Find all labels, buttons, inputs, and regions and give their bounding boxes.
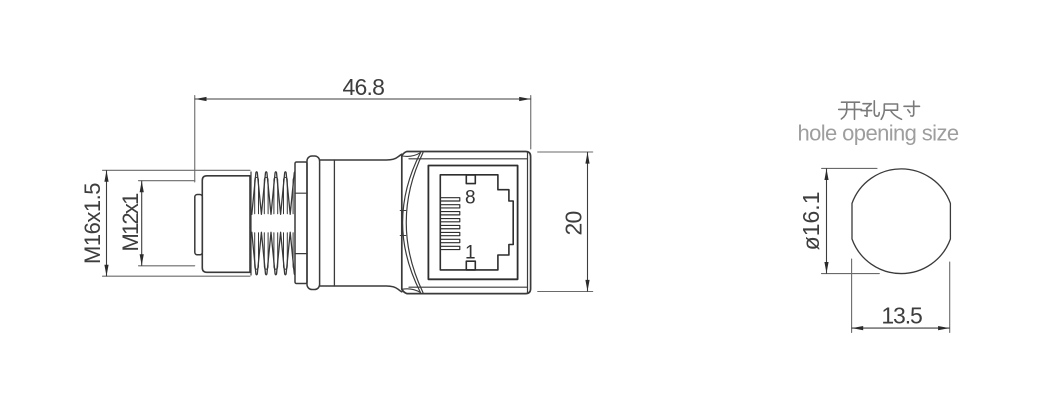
svg-text:hole opening size: hole opening size bbox=[797, 121, 958, 146]
svg-text:ø16.1: ø16.1 bbox=[798, 191, 824, 250]
svg-text:20: 20 bbox=[561, 212, 587, 236]
svg-text:13.5: 13.5 bbox=[881, 303, 922, 329]
svg-text:46.8: 46.8 bbox=[343, 74, 385, 100]
svg-text:M12x1: M12x1 bbox=[118, 193, 143, 252]
svg-text:M16x1.5: M16x1.5 bbox=[80, 183, 105, 264]
svg-text:8: 8 bbox=[465, 188, 476, 209]
svg-text:1: 1 bbox=[465, 242, 476, 263]
